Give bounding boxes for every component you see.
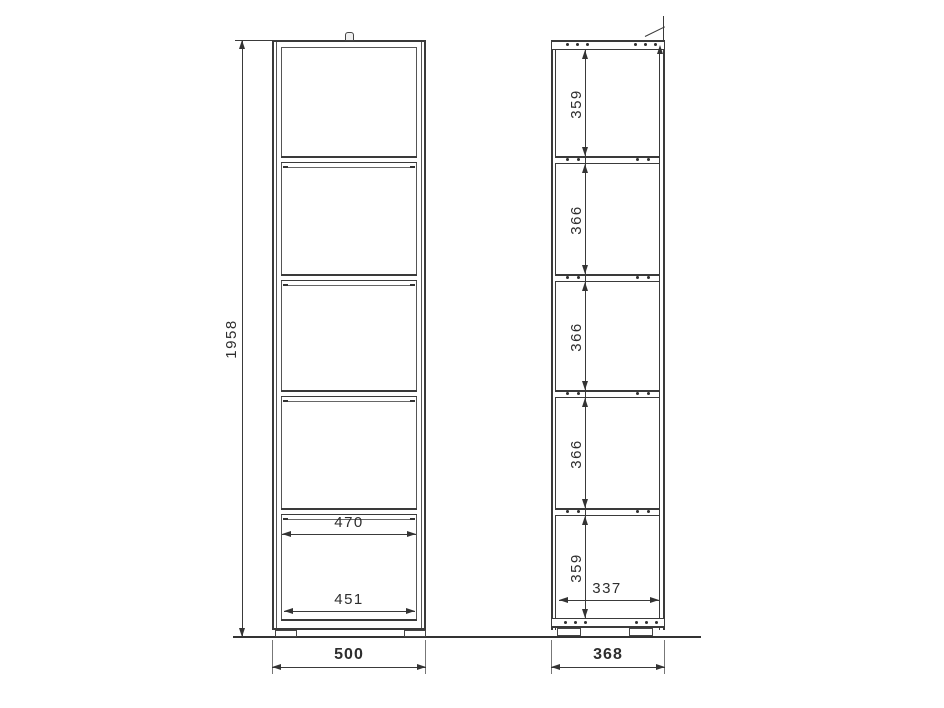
- depth-inner-arrow-left: [559, 597, 568, 603]
- front-bottom-inner-face: [281, 619, 417, 621]
- drill-hole-dot: [645, 621, 648, 624]
- side-shelf-1: [555, 156, 659, 164]
- front-shelf-3: [281, 390, 417, 397]
- front-shelf-1-tick-left: [283, 166, 288, 168]
- shelf-pin-dot: [577, 392, 580, 395]
- chain-arrow: [582, 381, 588, 390]
- front-shelf-1-underline: [283, 167, 415, 168]
- front-shelf-3-tick-right: [410, 400, 415, 402]
- side-foot-right: [629, 628, 653, 636]
- top-corner-leader-line: [645, 26, 665, 37]
- shelf-pin-dot: [647, 392, 650, 395]
- shelf-width-arrow-left: [282, 531, 291, 537]
- height-arrow-bottom: [239, 628, 245, 637]
- dim-label-overall-height: 1958: [223, 308, 241, 370]
- chain-arrow: [582, 398, 588, 407]
- shelf-pin-dot: [566, 392, 569, 395]
- drill-hole-dot: [655, 621, 658, 624]
- shelf-pin-dot: [647, 510, 650, 513]
- depth-dimension-line: [551, 667, 665, 668]
- drill-hole-dot: [644, 43, 647, 46]
- depth-arrow-right: [656, 664, 665, 670]
- front-foot-left: [275, 630, 297, 637]
- shelf-pin-dot: [577, 276, 580, 279]
- chain-arrow: [582, 499, 588, 508]
- dim-label-bottom-inner-width: 451: [319, 591, 379, 609]
- shelf-pin-dot: [636, 392, 639, 395]
- drill-hole-dot: [584, 621, 587, 624]
- dim-label-compartment-1: 359: [568, 79, 586, 129]
- dim-label-compartment-3: 366: [568, 312, 586, 362]
- side-shelf-4: [555, 508, 659, 516]
- front-shelf-1-tick-right: [410, 166, 415, 168]
- front-shelf-4-tick-right: [410, 518, 415, 520]
- dim-label-shelf-inner-width: 470: [319, 514, 379, 532]
- bottom-width-dimension-line: [284, 611, 415, 612]
- dim-label-compartment-4: 366: [568, 429, 586, 479]
- width-dimension-line: [272, 667, 426, 668]
- depth-inner-dimension-line: [559, 600, 659, 601]
- side-back-panel-outer: [663, 40, 665, 630]
- width-arrow-left: [272, 664, 281, 670]
- side-shelf-2: [555, 274, 659, 282]
- depth-arrow-left: [551, 664, 560, 670]
- front-shelf-2-tick-left: [283, 284, 288, 286]
- drill-hole-dot: [635, 621, 638, 624]
- bottom-width-arrow-right: [406, 608, 415, 614]
- front-foot-right: [404, 630, 426, 637]
- side-front-edge-outer: [551, 40, 553, 630]
- front-shelf-4-tick-left: [283, 518, 288, 520]
- drill-hole-dot: [634, 43, 637, 46]
- shelf-pin-dot: [647, 158, 650, 161]
- side-back-panel-inner: [659, 40, 660, 630]
- width-arrow-right: [417, 664, 426, 670]
- height-arrow-top: [239, 40, 245, 49]
- height-dimension-line: [242, 40, 243, 637]
- front-shelf-2-underline: [283, 285, 415, 286]
- shelf-pin-dot: [577, 158, 580, 161]
- bottom-width-arrow-left: [284, 608, 293, 614]
- front-shelf-3-tick-left: [283, 400, 288, 402]
- front-shelf-1: [281, 156, 417, 163]
- chain-arrow: [582, 164, 588, 173]
- drill-hole-dot: [586, 43, 589, 46]
- chain-arrow: [582, 50, 588, 59]
- shelf-width-dimension-line: [282, 534, 416, 535]
- chain-arrow: [582, 516, 588, 525]
- side-shelf-3: [555, 390, 659, 398]
- dim-label-overall-width: 500: [314, 646, 384, 664]
- depth-inner-arrow-right: [650, 597, 659, 603]
- front-shelf-2-tick-right: [410, 284, 415, 286]
- front-top-inner-face: [281, 47, 417, 48]
- side-foot-left: [557, 628, 581, 636]
- dim-label-overall-depth: 368: [573, 646, 643, 664]
- shelf-pin-dot: [566, 158, 569, 161]
- top-corner-arrow: [657, 45, 663, 54]
- shelf-pin-dot: [636, 276, 639, 279]
- shelf-pin-dot: [636, 510, 639, 513]
- side-front-edge-inner: [555, 40, 556, 630]
- chain-arrow: [582, 282, 588, 291]
- drill-hole-dot: [576, 43, 579, 46]
- shelf-pin-dot: [577, 510, 580, 513]
- dim-label-inner-depth: 337: [577, 580, 637, 598]
- chain-arrow: [582, 609, 588, 618]
- drill-hole-dot: [564, 621, 567, 624]
- front-right-inner-face: [416, 48, 417, 620]
- drill-hole-dot: [574, 621, 577, 624]
- shelf-pin-dot: [566, 276, 569, 279]
- drill-hole-dot: [566, 43, 569, 46]
- chain-arrow: [582, 265, 588, 274]
- technical-drawing-canvas: 1958 470 451 500: [0, 0, 944, 708]
- dim-label-compartment-2: 366: [568, 195, 586, 245]
- chain-arrow: [582, 147, 588, 156]
- ground-line: [233, 636, 701, 638]
- front-shelf-2: [281, 274, 417, 281]
- front-shelf-3-underline: [283, 401, 415, 402]
- front-mid-frame: [276, 42, 422, 628]
- shelf-pin-dot: [636, 158, 639, 161]
- top-fitting-knob-icon: [345, 32, 354, 41]
- shelf-pin-dot: [647, 276, 650, 279]
- shelf-pin-dot: [566, 510, 569, 513]
- shelf-width-arrow-right: [407, 531, 416, 537]
